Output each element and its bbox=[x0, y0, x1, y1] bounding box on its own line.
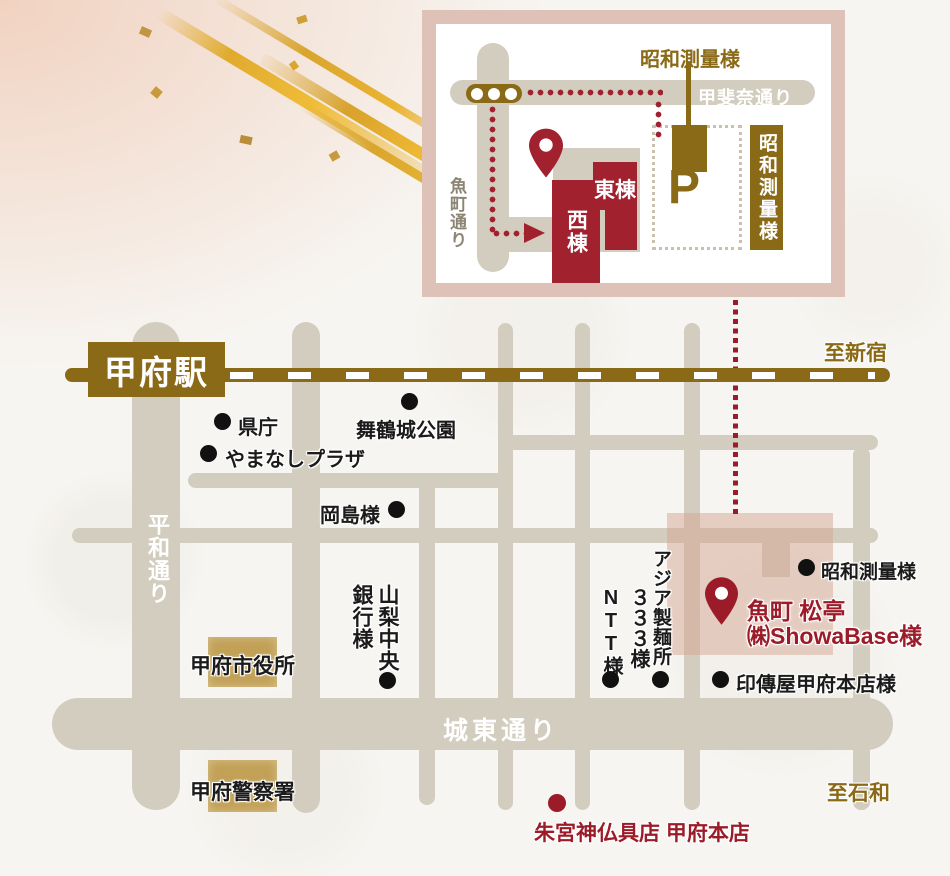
traffic-light-lamp bbox=[488, 88, 500, 100]
inset-kaina-street-label: 甲斐奈通り bbox=[698, 84, 793, 110]
poi-dot-maizuru bbox=[401, 393, 418, 410]
confetti-fleck bbox=[329, 150, 341, 161]
inset-east-building-upper: 東棟 bbox=[593, 162, 637, 210]
poi-dot-shumiya bbox=[548, 794, 566, 812]
poi-dot-bank bbox=[379, 672, 396, 689]
station-box: 甲府駅 bbox=[88, 342, 225, 397]
railway-dashes bbox=[230, 372, 875, 379]
confetti-fleck bbox=[139, 26, 152, 38]
joto-street-label: 城東通り bbox=[443, 711, 559, 747]
road-horizontal-3 bbox=[188, 473, 513, 488]
inset-showa-building bbox=[672, 125, 707, 172]
direction-isawa: 至石和 bbox=[827, 777, 890, 807]
access-map: 甲府駅 至新宿 至石和 平和通り 城東通り 県庁 舞鶴城公園 やまなしプラザ 岡… bbox=[0, 0, 950, 876]
poi-dot-ntt bbox=[602, 671, 619, 688]
confetti-fleck bbox=[296, 15, 308, 25]
confetti-fleck bbox=[150, 86, 163, 99]
station-label: 甲府駅 bbox=[104, 346, 209, 394]
destination-name-line2: ㈱ShowaBase様 bbox=[747, 617, 922, 651]
heiwa-street-label: 平和通り bbox=[146, 513, 168, 605]
destination-pin-icon bbox=[705, 577, 738, 625]
poi-dot-showa-survey bbox=[798, 559, 815, 576]
route-dotted-line bbox=[733, 300, 738, 516]
poi-kencho: 県庁 bbox=[238, 411, 278, 440]
poi-asia-col-right: アジア製麺所 bbox=[651, 549, 670, 666]
poi-maizuru-park: 舞鶴城公園 bbox=[356, 414, 456, 443]
poi-dot-yamanashi-plaza bbox=[200, 445, 217, 462]
inset-route-dots-right-down bbox=[655, 101, 662, 141]
direction-shinjuku: 至新宿 bbox=[824, 337, 887, 367]
poi-asia-col-left: ３３３様 bbox=[628, 587, 648, 669]
poi-yamanashi-plaza: やまなしプラザ bbox=[225, 443, 365, 472]
inset-showa-leader-line bbox=[686, 63, 691, 125]
poi-dot-asia bbox=[652, 671, 669, 688]
inset-location-pin-icon bbox=[529, 127, 563, 179]
road-horizontal-2 bbox=[505, 435, 878, 450]
traffic-light-lamp bbox=[471, 88, 483, 100]
inset-uomachi-street-label: 魚町通り bbox=[448, 177, 465, 249]
poi-shumiya: 朱宮神仏具店 甲府本店 bbox=[534, 817, 750, 847]
poi-police: 甲府警察署 bbox=[190, 776, 295, 806]
poi-inden: 印傳屋甲府本店様 bbox=[736, 668, 896, 697]
poi-dot-inden bbox=[712, 671, 729, 688]
traffic-light-icon bbox=[466, 84, 522, 103]
inset-east-building-label: 東棟 bbox=[594, 174, 636, 204]
poi-okajima: 岡島様 bbox=[320, 499, 380, 528]
inset-east-building-lower bbox=[605, 210, 637, 250]
inset-showa-block: 昭和測量様 bbox=[750, 125, 783, 250]
inset-route-dots-bottom bbox=[493, 230, 524, 237]
confetti-fleck bbox=[239, 135, 252, 145]
poi-dot-okajima bbox=[388, 501, 405, 518]
traffic-light-lamp bbox=[505, 88, 517, 100]
poi-ntt: NTT様 bbox=[601, 587, 621, 677]
road-vertical-3 bbox=[419, 473, 435, 805]
inset-showa-label-top: 昭和測量様 bbox=[640, 43, 740, 72]
inset-route-dots-left-down bbox=[489, 106, 496, 233]
inset-route-dots-top bbox=[527, 89, 663, 96]
inset-route-arrow-icon bbox=[524, 223, 545, 243]
poi-dot-kencho bbox=[214, 413, 231, 430]
inset-showa-block-label: 昭和測量様 bbox=[757, 133, 776, 243]
poi-city-hall: 甲府市役所 bbox=[190, 650, 295, 680]
inset-west-building-label: 西棟 bbox=[566, 209, 587, 255]
poi-bank-col-right: 山梨中央 bbox=[377, 584, 398, 672]
poi-bank-col-left: 銀行様 bbox=[351, 584, 372, 650]
poi-showa-survey: 昭和測量様 bbox=[821, 557, 916, 584]
